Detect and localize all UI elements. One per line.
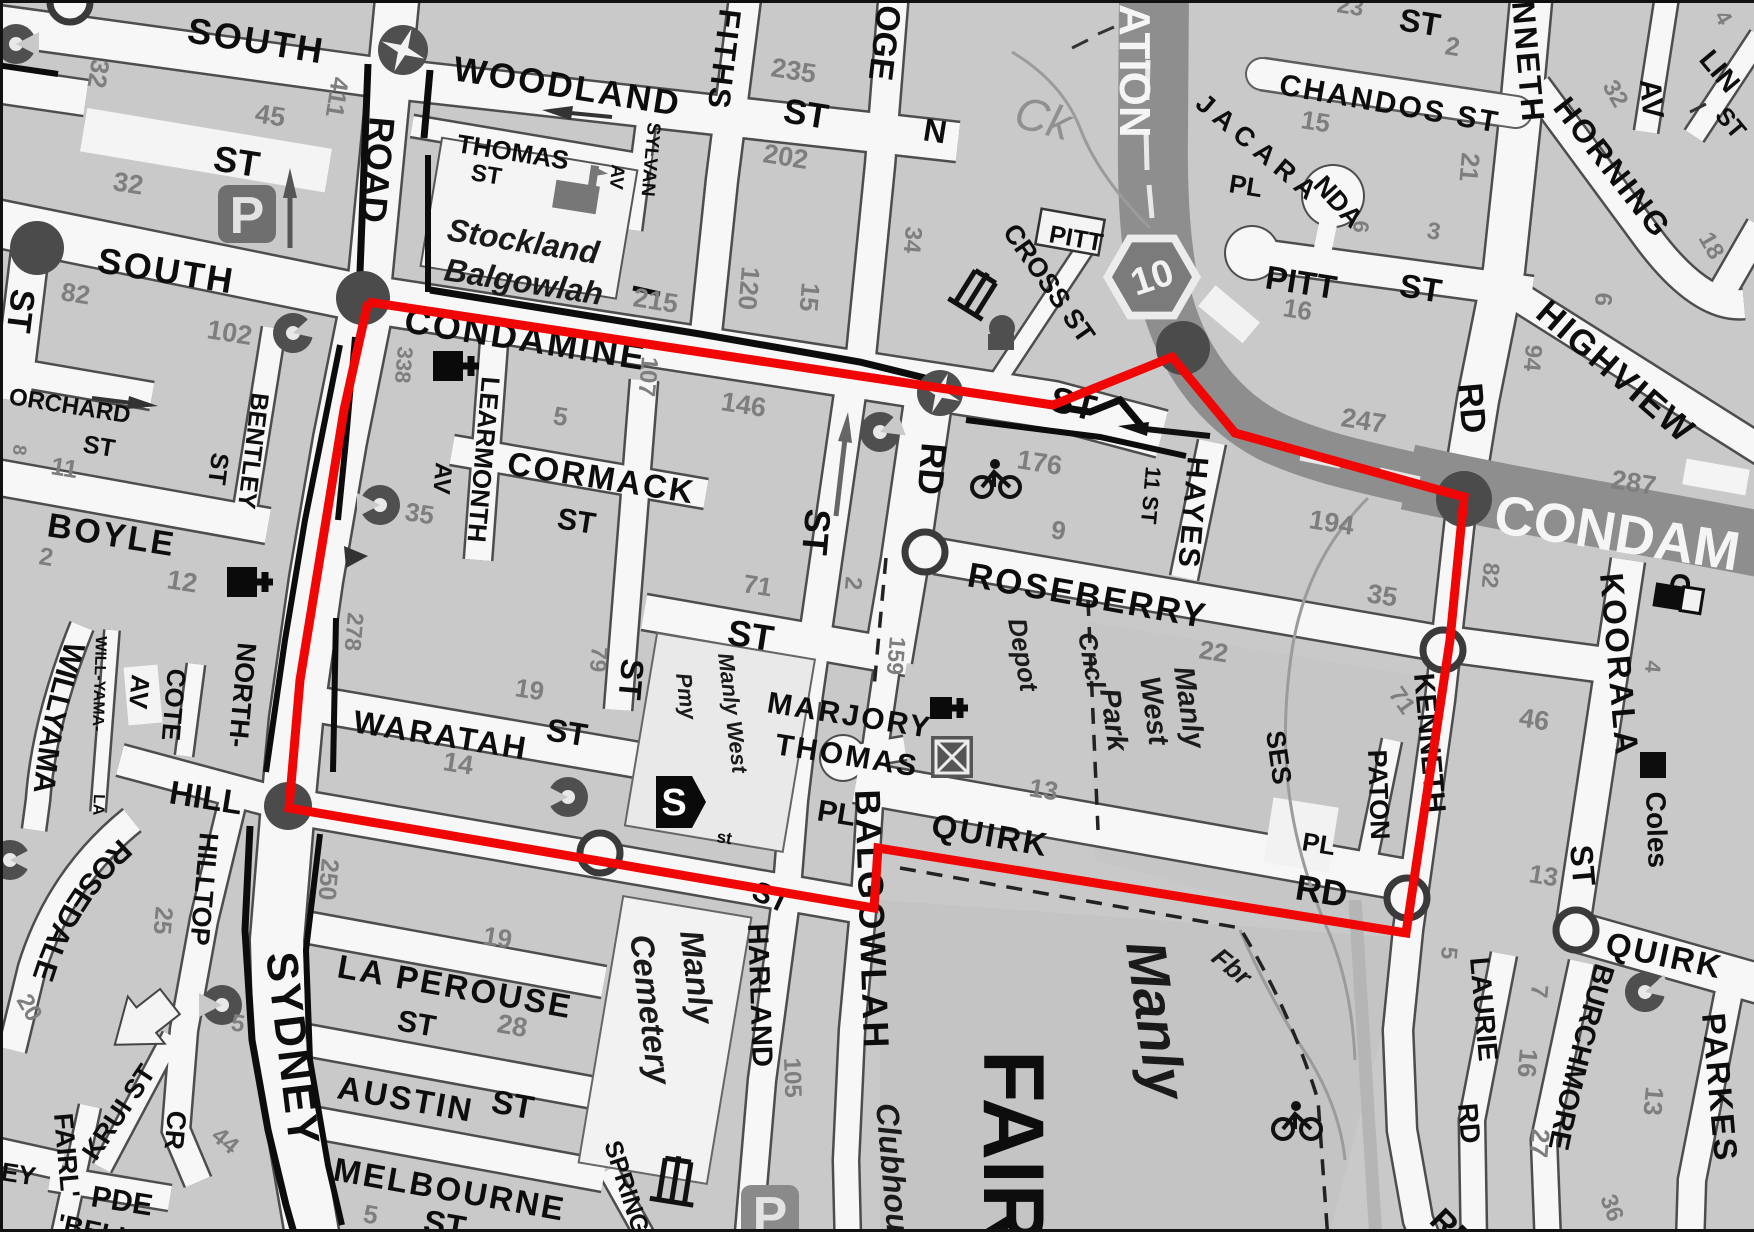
svg-text:PATON: PATON [1362,749,1395,840]
svg-text:AV: AV [123,673,156,710]
svg-text:105: 105 [778,1057,806,1098]
svg-text:AV: AV [427,461,457,495]
svg-text:ST: ST [489,1082,537,1126]
svg-text:PL: PL [1300,826,1338,861]
svg-text:13: 13 [1527,858,1560,892]
svg-text:13: 13 [1027,772,1060,806]
svg-text:338: 338 [390,346,418,385]
svg-text:WILL-YAMA-: WILL-YAMA- [89,636,109,732]
svg-text:ST: ST [395,1004,438,1043]
svg-text:AV: AV [605,164,628,191]
svg-text:ST: ST [1563,843,1602,887]
svg-text:22: 22 [1197,634,1230,668]
svg-text:35: 35 [403,496,436,530]
svg-text:ST: ST [81,430,117,463]
svg-text:RD: RD [1293,866,1351,915]
svg-text:COTE: COTE [156,667,192,742]
svg-text:ST: ST [469,159,504,191]
svg-text:ST: ST [202,451,234,486]
svg-text:16: 16 [1512,1047,1544,1078]
svg-text:107: 107 [633,355,663,397]
svg-text:ST: ST [611,657,650,701]
svg-text:2: 2 [839,575,867,591]
svg-text:CR: CR [159,1109,192,1150]
svg-text:ST: ST [781,91,831,137]
svg-text:120: 120 [732,265,766,311]
svg-text:32: 32 [111,166,145,200]
svg-text:ST: ST [1397,266,1444,309]
svg-text:16: 16 [1281,292,1314,326]
svg-text:11 ST: 11 ST [1136,466,1166,526]
svg-text:ST: ST [555,502,598,541]
svg-text:19: 19 [513,672,546,706]
svg-text:ST: ST [211,137,263,185]
svg-text:S: S [661,782,686,824]
svg-text:RD: RD [909,441,954,496]
svg-text:82: 82 [59,276,92,310]
svg-text:PL: PL [1227,168,1265,203]
svg-text:6: 6 [1589,291,1617,307]
svg-text:LA: LA [89,794,107,816]
svg-text:ST: ST [0,287,42,335]
svg-text:94: 94 [1518,343,1547,373]
svg-text:45: 45 [253,98,287,132]
svg-text:21: 21 [1454,151,1486,182]
svg-text:278: 278 [340,612,369,653]
svg-text:14: 14 [441,746,475,780]
svg-text:19: 19 [481,920,514,954]
svg-text:35: 35 [1365,578,1399,612]
svg-text:AV: AV [1633,78,1669,120]
svg-text:82: 82 [1477,562,1505,590]
svg-text:ATION: ATION [1110,4,1159,138]
svg-text:Coles: Coles [1640,791,1674,868]
svg-text:ST: ST [794,507,839,556]
svg-text:71: 71 [741,568,774,602]
svg-text:HARLAND: HARLAND [741,923,778,1067]
svg-text:FAIR: FAIR [965,1050,1061,1240]
svg-text:6: 6 [1348,220,1374,234]
svg-text:32: 32 [82,57,116,90]
svg-text:ST: ST [544,711,590,753]
svg-text:46: 46 [1517,702,1551,736]
svg-text:11: 11 [49,452,80,484]
svg-text:13: 13 [1638,1085,1670,1116]
svg-text:34: 34 [898,225,927,255]
svg-text:15: 15 [794,281,826,312]
svg-text:28: 28 [495,1008,530,1043]
svg-text:RD: RD [1450,381,1493,435]
svg-text:5: 5 [1436,946,1463,961]
svg-text:159: 159 [882,636,911,676]
svg-text:79: 79 [585,646,613,674]
svg-text:12: 12 [165,564,199,598]
svg-text:P: P [230,187,265,245]
svg-text:RD: RD [1452,1102,1486,1145]
svg-text:7: 7 [1525,983,1553,999]
svg-text:ST: ST [1397,1,1443,43]
svg-text:ST: ST [725,611,777,659]
svg-text:250: 250 [312,857,344,901]
svg-text:EY: EY [0,1156,38,1191]
svg-text:25: 25 [148,905,178,935]
